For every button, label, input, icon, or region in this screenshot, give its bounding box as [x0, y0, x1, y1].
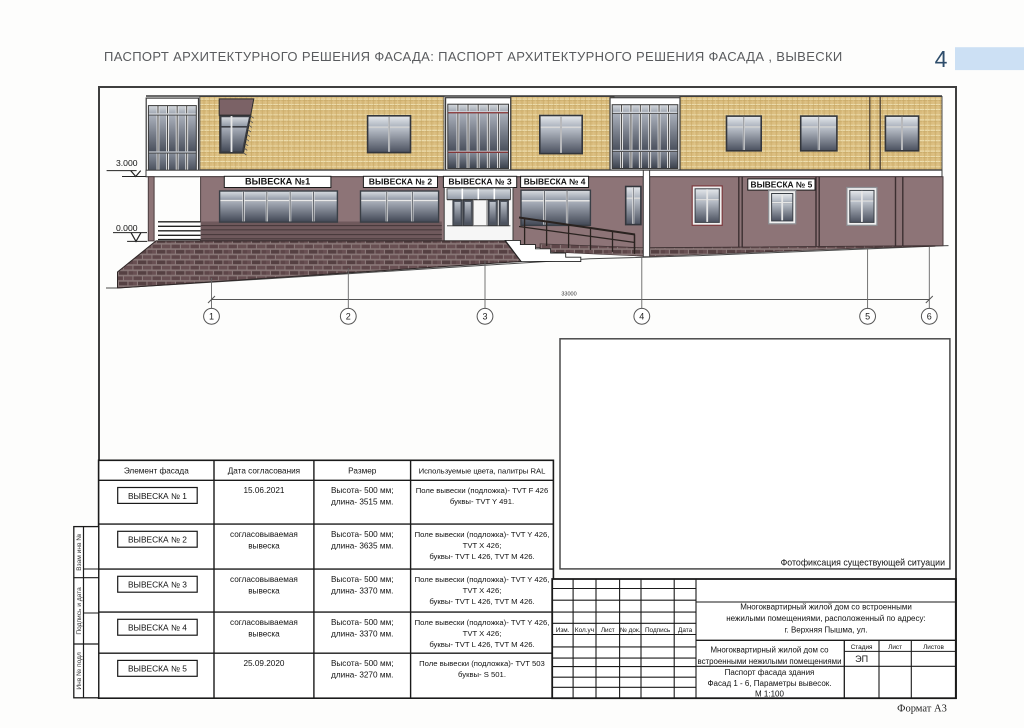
svg-text:6: 6 — [927, 312, 932, 322]
svg-text:3.000: 3.000 — [116, 158, 138, 168]
svg-text:согласовываемая: согласовываемая — [230, 575, 298, 584]
svg-text:длина- 3370 мм.: длина- 3370 мм. — [331, 587, 393, 596]
svg-text:ПАСПОРТ АРХИТЕКТУРНОГО РЕШЕНИЯ: ПАСПОРТ АРХИТЕКТУРНОГО РЕШЕНИЯ ФАСАДА: П… — [104, 49, 843, 64]
svg-text:Поле вывески (подложка)- TVT F: Поле вывески (подложка)- TVT F 426 — [416, 486, 549, 495]
svg-text:Высота- 500 мм;: Высота- 500 мм; — [331, 486, 394, 495]
svg-text:ВЫВЕСКА № 5: ВЫВЕСКА № 5 — [751, 179, 813, 189]
svg-text:вывеска: вывеска — [248, 587, 280, 596]
svg-text:Инв № подл: Инв № подл — [76, 652, 83, 690]
svg-text:длина- 3370 мм.: длина- 3370 мм. — [331, 630, 393, 639]
svg-text:Поле вывески (подложка)- TVT Y: Поле вывески (подложка)- TVT Y 426, — [415, 575, 550, 584]
svg-text:Используемые цвета, палитры RA: Используемые цвета, палитры RAL — [419, 467, 547, 476]
svg-text:ВЫВЕСКА № 2: ВЫВЕСКА № 2 — [128, 535, 187, 545]
svg-text:буквы- TVT L 426, TVT M 426.: буквы- TVT L 426, TVT M 426. — [429, 597, 534, 606]
svg-text:Формат А3: Формат А3 — [897, 704, 947, 715]
svg-text:длина- 3270 мм.: длина- 3270 мм. — [331, 671, 393, 680]
svg-text:ВЫВЕСКА №1: ВЫВЕСКА №1 — [245, 177, 310, 187]
svg-text:Многоквартирный жилой дом со: Многоквартирный жилой дом со — [710, 646, 829, 655]
svg-text:1: 1 — [209, 312, 214, 322]
svg-text:вывеска: вывеска — [248, 630, 280, 639]
svg-text:ВЫВЕСКА № 1: ВЫВЕСКА № 1 — [128, 491, 187, 501]
svg-text:4: 4 — [935, 46, 948, 72]
svg-text:длина- 3635 мм.: длина- 3635 мм. — [331, 542, 393, 551]
svg-text:Дата согласования: Дата согласования — [228, 467, 300, 476]
svg-text:Поле вывески (подложка)- TVT Y: Поле вывески (подложка)- TVT Y 426, — [415, 618, 550, 627]
svg-text:Высота- 500 мм;: Высота- 500 мм; — [331, 618, 394, 627]
svg-text:Стадия: Стадия — [851, 644, 873, 651]
svg-text:Фасад 1 - 6, Параметры вывесо: Фасад 1 - 6, Параметры вывесок. — [707, 679, 831, 688]
svg-text:согласовываемая: согласовываемая — [230, 530, 298, 539]
svg-text:Лист: Лист — [601, 627, 615, 634]
svg-text:вывеска: вывеска — [248, 542, 280, 551]
svg-text:Кол.уч: Кол.уч — [575, 627, 594, 634]
svg-text:Подпись: Подпись — [645, 627, 671, 634]
svg-text:Подпись и дата: Подпись и дата — [76, 587, 83, 635]
svg-text:ВЫВЕСКА № 4: ВЫВЕСКА № 4 — [128, 623, 187, 633]
svg-text:Элемент фасада: Элемент фасада — [124, 467, 189, 476]
svg-text:3: 3 — [482, 312, 487, 322]
svg-text:ВЫВЕСКА № 4: ВЫВЕСКА № 4 — [524, 177, 586, 187]
svg-text:М 1:100: М 1:100 — [755, 689, 784, 698]
svg-text:Лист: Лист — [888, 644, 902, 651]
svg-text:Высота- 500 мм;: Высота- 500 мм; — [331, 575, 394, 584]
svg-text:0.000: 0.000 — [116, 223, 138, 233]
svg-text:длина- 3515 мм.: длина- 3515 мм. — [331, 498, 393, 507]
svg-text:Листов: Листов — [923, 644, 944, 651]
svg-text:2: 2 — [346, 312, 351, 322]
svg-text:Фотофиксация существующей ситу: Фотофиксация существующей ситуации — [781, 558, 945, 568]
svg-text:TVT X 426;: TVT X 426; — [463, 586, 502, 595]
svg-text:Высота- 500 мм;: Высота- 500 мм; — [331, 530, 394, 539]
svg-text:ВЫВЕСКА № 2: ВЫВЕСКА № 2 — [369, 177, 433, 187]
svg-text:TVT X 426;: TVT X 426; — [463, 541, 502, 550]
svg-text:ВЫВЕСКА № 5: ВЫВЕСКА № 5 — [128, 664, 187, 674]
svg-text:Поле вывески (подложка)- TVT Y: Поле вывески (подложка)- TVT Y 426, — [415, 530, 550, 539]
svg-text:TVT X 426;: TVT X 426; — [463, 629, 502, 638]
svg-text:ВЫВЕСКА № 3: ВЫВЕСКА № 3 — [128, 580, 187, 590]
svg-text:33000: 33000 — [561, 292, 576, 298]
svg-text:нежилыми помещениями, располож: нежилыми помещениями, расположенный по а… — [726, 614, 925, 623]
svg-text:25.09.2020: 25.09.2020 — [243, 659, 284, 668]
svg-text:№ док.: № док. — [620, 627, 641, 634]
svg-text:Взам инв №: Взам инв № — [76, 534, 83, 571]
svg-text:Дата: Дата — [678, 627, 693, 634]
svg-text:15.06.2021: 15.06.2021 — [243, 486, 284, 495]
svg-text:буквы- TVT L 426, TVT M 426.: буквы- TVT L 426, TVT M 426. — [429, 640, 534, 649]
svg-text:Многоквартирный жилой дом со в: Многоквартирный жилой дом со встроенными — [740, 602, 912, 611]
svg-text:5: 5 — [865, 312, 870, 322]
svg-text:встроенными нежилыми помещени: встроенными нежилыми помещениями — [697, 657, 841, 666]
svg-text:г. Верхняя Пышма, ул.: г. Верхняя Пышма, ул. — [785, 626, 868, 635]
svg-text:Высота- 500 мм;: Высота- 500 мм; — [331, 659, 394, 668]
svg-text:буквы- TVT Y 491.: буквы- TVT Y 491. — [450, 497, 514, 506]
svg-text:Изм.: Изм. — [556, 627, 570, 634]
svg-text:буквы- TVT L 426, TVT M 426.: буквы- TVT L 426, TVT M 426. — [429, 552, 534, 561]
svg-text:ВЫВЕСКА № 3: ВЫВЕСКА № 3 — [448, 177, 512, 187]
svg-text:согласовываемая: согласовываемая — [230, 618, 298, 627]
svg-text:Размер: Размер — [348, 467, 377, 476]
svg-text:ЭП: ЭП — [855, 654, 868, 664]
svg-text:Паспорт фасада здания: Паспорт фасада здания — [725, 668, 815, 677]
svg-text:Поле вывески (подложка)- TVT 5: Поле вывески (подложка)- TVT 503 — [419, 659, 545, 668]
svg-text:4: 4 — [639, 312, 644, 322]
svg-text:буквы- S 501.: буквы- S 501. — [458, 670, 506, 679]
